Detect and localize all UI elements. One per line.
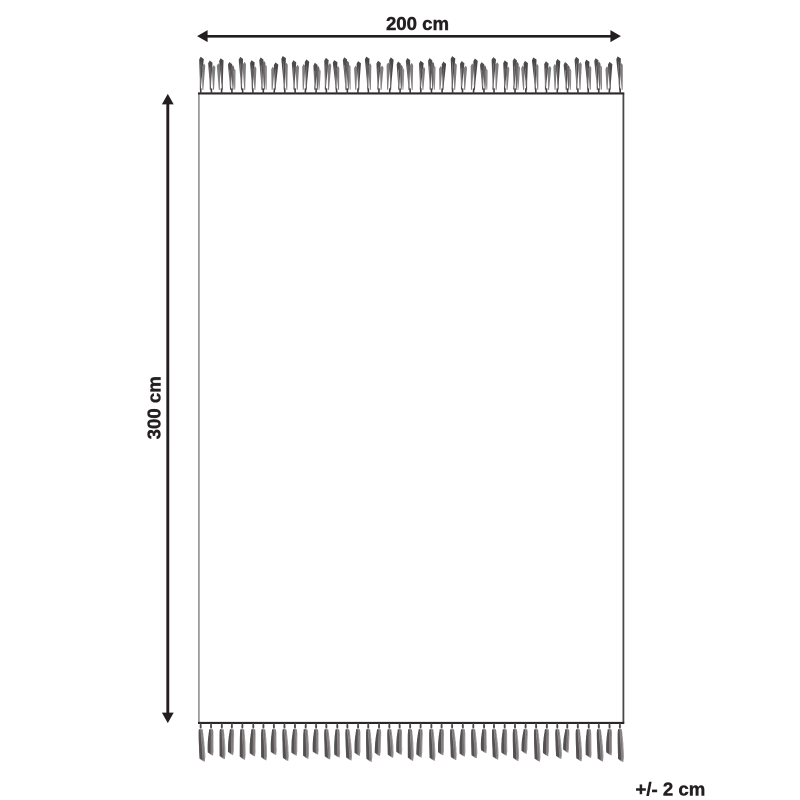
svg-text:200 cm: 200 cm bbox=[386, 13, 449, 34]
svg-text:300 cm: 300 cm bbox=[143, 376, 164, 439]
svg-text:+/- 2 cm: +/- 2 cm bbox=[636, 778, 706, 799]
